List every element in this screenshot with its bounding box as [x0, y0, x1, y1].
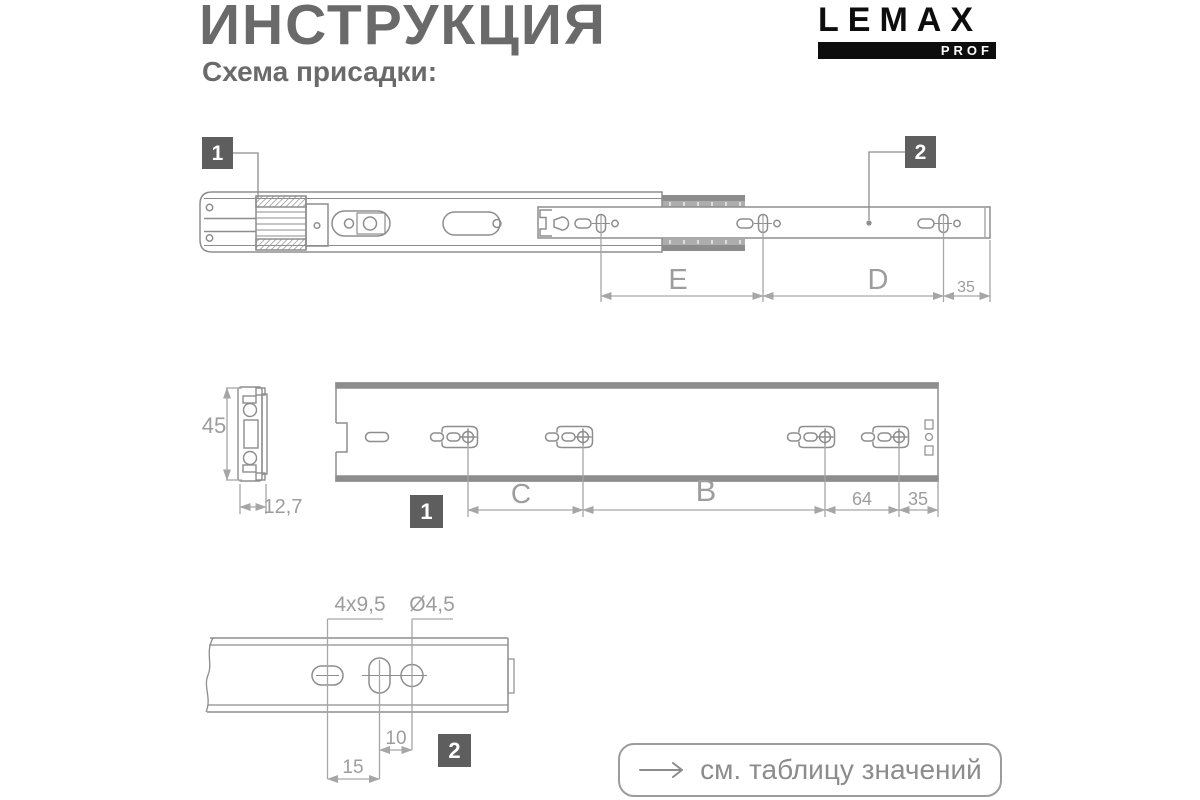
dim-label-15: 15	[342, 757, 363, 778]
see-values-table-label: см. таблицу значений	[700, 754, 982, 786]
dim-lines-cross-section	[226, 388, 266, 514]
part-marker-1-middle: 1	[410, 495, 443, 528]
drawer-rail-view	[206, 638, 514, 712]
slide-extended-view	[200, 192, 990, 252]
dim-label-10: 10	[385, 728, 406, 749]
cross-section-view	[238, 387, 267, 481]
dim-label-b: B	[696, 473, 717, 508]
dim-label-hole-dia: Ø4,5	[409, 593, 455, 616]
dim-label-35-mid: 35	[908, 489, 928, 509]
technical-drawing: E D 35 1 2 45 12,7	[0, 0, 1200, 800]
dim-label-slot: 4x9,5	[334, 593, 385, 616]
dim-label-e: E	[668, 264, 687, 296]
see-values-table-button[interactable]: см. таблицу значений	[618, 743, 1002, 797]
cabinet-rail-view	[334, 383, 938, 481]
dim-label-d: D	[868, 264, 889, 296]
part-marker-2-bottom: 2	[438, 734, 471, 767]
marker-2-number: 2	[448, 738, 460, 763]
dim-label-c: C	[511, 478, 531, 509]
dim-lines-drawer-rail	[328, 619, 454, 779]
long-right-arrow-icon	[638, 761, 686, 779]
marker-2-number: 2	[915, 141, 927, 164]
dim-label-35-top: 35	[957, 279, 975, 296]
dim-label-64: 64	[852, 489, 872, 509]
marker-1-number: 1	[420, 499, 432, 524]
dim-label-12-7: 12,7	[264, 496, 303, 518]
part-marker-1-top: 1	[202, 137, 258, 199]
dim-label-45: 45	[202, 413, 226, 438]
marker-1-number: 1	[212, 142, 224, 165]
